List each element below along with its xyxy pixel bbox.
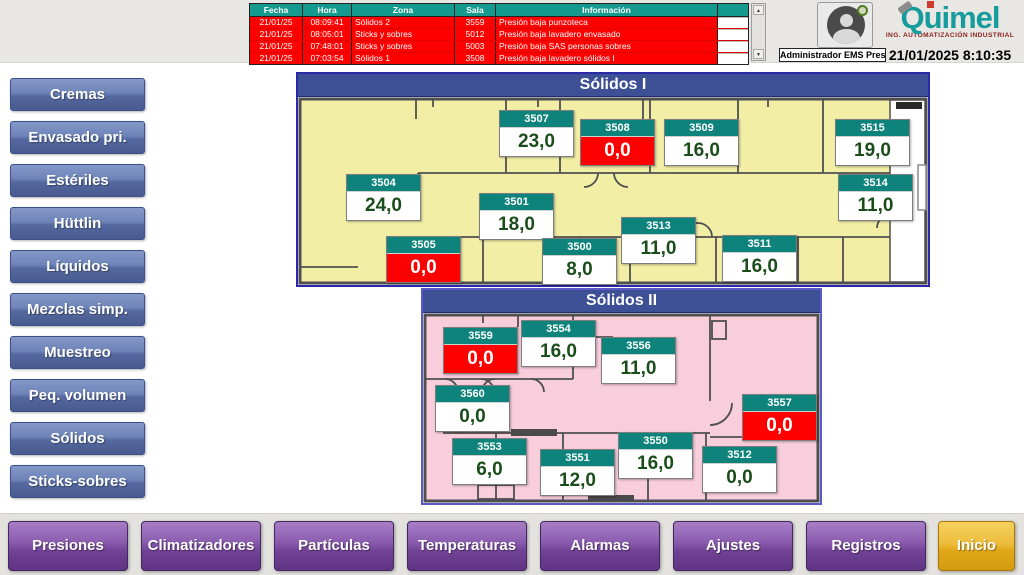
- alarm-row[interactable]: 21/01/2508:09:41Sólidos 23559Presión baj…: [250, 17, 748, 28]
- column-header: [718, 4, 748, 17]
- room-number: 3550: [619, 433, 692, 450]
- nav-button-climatizadores[interactable]: Climatizadores: [141, 521, 261, 571]
- alarm-table-body: 21/01/2508:09:41Sólidos 23559Presión baj…: [250, 17, 748, 64]
- room-number: 3513: [622, 218, 695, 235]
- room-tag-3508[interactable]: 35080,0: [580, 119, 655, 166]
- floorplan-solidos-1: 350723,035080,0350916,0351519,0350424,03…: [298, 97, 928, 285]
- cell: Sólidos 2: [352, 17, 455, 28]
- room-number: 3505: [387, 237, 460, 254]
- room-pressure-value: 16,0: [723, 253, 796, 281]
- room-tag-3512[interactable]: 35120,0: [702, 446, 777, 493]
- panel-solidos-2: Sólidos II: [421, 288, 822, 505]
- nav-button-ajustes[interactable]: Ajustes: [673, 521, 793, 571]
- room-tag-3559[interactable]: 35590,0: [443, 327, 518, 374]
- room-pressure-value: 16,0: [665, 137, 738, 165]
- room-tag-3515[interactable]: 351519,0: [835, 119, 910, 166]
- room-number: 3556: [602, 338, 675, 355]
- room-pressure-value: 16,0: [522, 338, 595, 366]
- cell: Presión baja lavadero sólidos I: [496, 53, 718, 64]
- nav-button-alarmas[interactable]: Alarmas: [540, 521, 660, 571]
- datetime-display: 21/01/2025 8:10:35: [884, 47, 1016, 63]
- room-tag-3514[interactable]: 351411,0: [838, 174, 913, 221]
- room-pressure-value: 8,0: [543, 256, 616, 284]
- sidebar-button-sticks-sobres[interactable]: Sticks-sobres: [10, 465, 145, 498]
- column-header: Fecha: [250, 4, 303, 17]
- alarm-table-scrollbar[interactable]: ▲ ▼: [751, 3, 766, 61]
- alarm-row[interactable]: 21/01/2507:03:54Sólidos 13508Presión baj…: [250, 52, 748, 64]
- panel-title: Sólidos I: [298, 74, 928, 97]
- zone-sidebar: CremasEnvasado pri.EstérilesHüttlinLíqui…: [10, 78, 145, 508]
- cell: 5012: [455, 29, 496, 40]
- room-pressure-value: 0,0: [436, 403, 509, 431]
- nav-button-inicio[interactable]: Inicio: [938, 521, 1015, 571]
- nav-button-part-culas[interactable]: Partículas: [274, 521, 394, 571]
- floorplan-solidos-2: 35590,0355416,0355611,035600,035570,0355…: [423, 313, 820, 503]
- room-number: 3553: [453, 439, 526, 456]
- room-number: 3509: [665, 120, 738, 137]
- cell: 07:03:54: [303, 53, 352, 64]
- room-pressure-value: 0,0: [387, 254, 460, 282]
- room-number: 3500: [543, 239, 616, 256]
- room-number: 3560: [436, 386, 509, 403]
- room-number: 3504: [347, 175, 420, 192]
- room-tag-3551[interactable]: 355112,0: [540, 449, 615, 496]
- alarm-table[interactable]: FechaHoraZonaSalaInformación 21/01/2508:…: [249, 3, 749, 65]
- quimel-logo: Quimel ING. AUTOMATIZACIÓN INDUSTRIAL: [884, 2, 1016, 46]
- alarm-row[interactable]: 21/01/2508:05:01Sticks y sobres5012Presi…: [250, 28, 748, 40]
- column-header: Zona: [352, 4, 455, 17]
- room-tag-3553[interactable]: 35536,0: [452, 438, 527, 485]
- sidebar-button-muestreo[interactable]: Muestreo: [10, 336, 145, 369]
- sidebar-button-envasado-pri-[interactable]: Envasado pri.: [10, 121, 145, 154]
- room-number: 3514: [839, 175, 912, 192]
- panel-title: Sólidos II: [423, 290, 820, 313]
- room-number: 3559: [444, 328, 517, 345]
- nav-button-presiones[interactable]: Presiones: [8, 521, 128, 571]
- room-number: 3512: [703, 447, 776, 464]
- alarm-row[interactable]: 21/01/2507:48:01Sticks y sobres5003Presi…: [250, 40, 748, 52]
- sidebar-button-cremas[interactable]: Cremas: [10, 78, 145, 111]
- room-tag-3505[interactable]: 35050,0: [386, 236, 461, 283]
- room-pressure-value: 23,0: [500, 128, 573, 156]
- room-pressure-value: 0,0: [444, 345, 517, 373]
- sidebar-button-mezclas-simp-[interactable]: Mezclas simp.: [10, 293, 145, 326]
- room-number: 3511: [723, 236, 796, 253]
- room-tag-3500[interactable]: 35008,0: [542, 238, 617, 285]
- cell: Sticks y sobres: [352, 41, 455, 52]
- alarm-table-header: FechaHoraZonaSalaInformación: [250, 4, 748, 17]
- room-pressure-value: 16,0: [619, 450, 692, 478]
- cell: [718, 17, 748, 28]
- logo-wordmark: Quimel: [900, 2, 999, 34]
- room-pressure-value: 11,0: [622, 235, 695, 263]
- room-pressure-value: 12,0: [541, 467, 614, 495]
- room-pressure-value: 11,0: [602, 355, 675, 383]
- scroll-up-icon[interactable]: ▲: [753, 5, 764, 15]
- room-pressure-value: 0,0: [581, 137, 654, 165]
- bottom-nav-band: PresionesClimatizadoresPartículasTempera…: [0, 513, 1024, 575]
- cell: 5003: [455, 41, 496, 52]
- room-pressure-value: 24,0: [347, 192, 420, 220]
- room-tag-3513[interactable]: 351311,0: [621, 217, 696, 264]
- cell: 21/01/25: [250, 29, 303, 40]
- cell: Presión baja SAS personas sobres: [496, 41, 718, 52]
- column-header: Sala: [455, 4, 496, 17]
- cell: 3559: [455, 17, 496, 28]
- room-number: 3557: [743, 395, 816, 412]
- room-tag-3507[interactable]: 350723,0: [499, 110, 574, 157]
- room-number: 3507: [500, 111, 573, 128]
- cell: Sólidos 1: [352, 53, 455, 64]
- logo-dot-icon: [927, 1, 934, 8]
- room-tag-3560[interactable]: 35600,0: [435, 385, 510, 432]
- cell: 08:09:41: [303, 17, 352, 28]
- sidebar-button-s-lidos[interactable]: Sólidos: [10, 422, 145, 455]
- column-header: Información: [496, 4, 718, 17]
- ems-presiones-screen: FechaHoraZonaSalaInformación 21/01/2508:…: [0, 0, 1024, 575]
- room-tag-3557[interactable]: 35570,0: [742, 394, 817, 441]
- cell: 3508: [455, 53, 496, 64]
- room-tag-3504[interactable]: 350424,0: [346, 174, 421, 221]
- nav-button-temperaturas[interactable]: Temperaturas: [407, 521, 527, 571]
- cell: [718, 29, 748, 40]
- cell: 21/01/25: [250, 41, 303, 52]
- room-number: 3508: [581, 120, 654, 137]
- room-pressure-value: 18,0: [480, 211, 553, 239]
- room-tag-3501[interactable]: 350118,0: [479, 193, 554, 240]
- cell: 21/01/25: [250, 17, 303, 28]
- scroll-down-icon[interactable]: ▼: [753, 49, 764, 59]
- cell: Sticks y sobres: [352, 29, 455, 40]
- cell: [718, 41, 748, 52]
- cell: 07:48:01: [303, 41, 352, 52]
- room-pressure-value: 19,0: [836, 137, 909, 165]
- room-pressure-value: 6,0: [453, 456, 526, 484]
- cell: [718, 53, 748, 64]
- room-pressure-value: 0,0: [703, 464, 776, 492]
- cell: 21/01/25: [250, 53, 303, 64]
- alarm-header-row: FechaHoraZonaSalaInformación: [250, 4, 748, 17]
- sidebar-button-h-ttlin[interactable]: Hüttlin: [10, 207, 145, 240]
- column-header: Hora: [303, 4, 352, 17]
- room-tag-3554[interactable]: 355416,0: [521, 320, 596, 367]
- room-number: 3501: [480, 194, 553, 211]
- logged-user-label: Administrador EMS Presiones: [779, 48, 886, 62]
- user-status-badge-icon: [857, 5, 868, 16]
- cell: Presión baja punzoteca: [496, 17, 718, 28]
- panel-solidos-1: Sólidos I: [296, 72, 930, 287]
- room-tag-3556[interactable]: 355611,0: [601, 337, 676, 384]
- room-tag-3509[interactable]: 350916,0: [664, 119, 739, 166]
- room-number: 3554: [522, 321, 595, 338]
- room-number: 3515: [836, 120, 909, 137]
- room-tag-3511[interactable]: 351116,0: [722, 235, 797, 282]
- sidebar-button-l-quidos[interactable]: Líquidos: [10, 250, 145, 283]
- cell: 08:05:01: [303, 29, 352, 40]
- room-pressure-value: 0,0: [743, 412, 816, 440]
- user-avatar-button[interactable]: [817, 2, 873, 48]
- sidebar-button-est-riles[interactable]: Estériles: [10, 164, 145, 197]
- cell: Presión baja lavadero envasado: [496, 29, 718, 40]
- nav-button-registros[interactable]: Registros: [806, 521, 926, 571]
- room-pressure-value: 11,0: [839, 192, 912, 220]
- room-number: 3551: [541, 450, 614, 467]
- sidebar-button-peq-volumen[interactable]: Peq. volumen: [10, 379, 145, 412]
- room-tag-3550[interactable]: 355016,0: [618, 432, 693, 479]
